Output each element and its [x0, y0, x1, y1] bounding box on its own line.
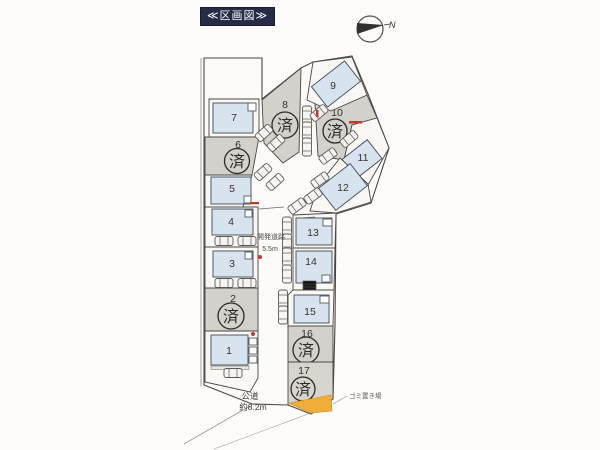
lot-12-number: 12 — [337, 182, 349, 194]
car-icon — [283, 217, 292, 235]
car-icon — [303, 122, 312, 140]
lot-13-number: 13 — [307, 227, 319, 239]
lot-8-number: 8 — [282, 99, 288, 111]
car-icon — [238, 237, 256, 246]
lot-10-sold-label: 済 — [327, 123, 343, 141]
lot-5: 5 — [205, 175, 252, 207]
lot-1-storage — [249, 356, 257, 363]
compass-north-label: N — [389, 20, 396, 30]
plot-map: ≪区画図≫ 6 済 2 済 8 — [0, 0, 600, 450]
development-road-name: 開発道路 — [257, 232, 285, 241]
lot-1-storage — [249, 347, 257, 354]
public-road-edge-2 — [214, 414, 308, 449]
lot-5-porch — [244, 196, 251, 203]
garbage-label-text: ゴミ置き場 — [349, 391, 382, 400]
lot-6: 6 済 — [205, 137, 259, 175]
lot-6-sold-label: 済 — [229, 153, 245, 171]
garbage-station-label: ゴミ置き場 — [333, 391, 382, 404]
lot-5-number: 5 — [229, 183, 235, 195]
public-road-width: 約8.2m — [239, 402, 266, 412]
car-icon — [279, 290, 288, 308]
lot-15: 15 — [288, 290, 334, 326]
lot-4-porch — [245, 210, 252, 217]
lot-7: 7 — [209, 99, 259, 137]
lot-17: 17 済 — [288, 362, 333, 414]
car-icon — [238, 279, 256, 288]
lot-7-number: 7 — [231, 112, 237, 124]
car-icon — [303, 138, 312, 156]
lot-3-number: 3 — [229, 258, 235, 270]
lot-14-number: 14 — [305, 256, 317, 268]
lot-16-sold-label: 済 — [298, 342, 314, 360]
development-road-width: 5.5m — [262, 246, 278, 253]
lot-1: 1 — [205, 331, 258, 392]
site-plan-svg: 6 済 2 済 8 済 10 済 16 済 — [0, 0, 600, 450]
car-icon — [279, 306, 288, 324]
lot-15-number: 15 — [304, 306, 316, 318]
lot-15-porch — [320, 296, 329, 303]
public-road-name: 公道 — [241, 391, 259, 401]
lot-16: 16 済 — [288, 326, 333, 363]
lot-14-porch — [322, 275, 330, 282]
lot-4-number: 4 — [228, 216, 234, 228]
lot-2-sold-label: 済 — [223, 308, 239, 326]
lot-2: 2 済 — [205, 288, 258, 331]
compass-icon: N — [357, 16, 396, 42]
lot-8-sold-label: 済 — [277, 117, 293, 135]
lot-3-porch — [245, 252, 252, 259]
car-icon — [224, 369, 242, 378]
lot-17-number: 17 — [298, 365, 310, 377]
lot-9-number: 9 — [330, 80, 336, 92]
lot-17-sold-label: 済 — [295, 381, 311, 399]
car-icon — [283, 248, 292, 266]
car-icon — [215, 279, 233, 288]
car-icon — [283, 265, 292, 283]
lot-1-number: 1 — [226, 345, 232, 357]
car-icon — [215, 237, 233, 246]
lot-13-porch — [323, 219, 332, 226]
lot-1-storage — [249, 338, 257, 345]
lot-13: 13 — [293, 213, 336, 248]
lot-7-porch — [248, 103, 256, 111]
lot-11-number: 11 — [358, 152, 369, 164]
